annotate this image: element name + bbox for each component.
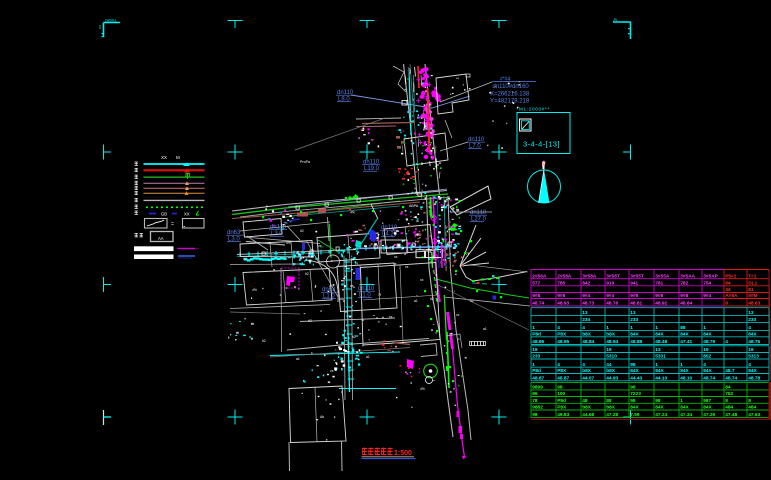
svg-text:987: 987 — [703, 398, 711, 404]
svg-text:1: 1 — [655, 362, 658, 368]
svg-text:84X: 84X — [703, 405, 712, 411]
svg-text:8: 8 — [725, 398, 728, 404]
svg-text:#2: #2 — [352, 335, 356, 339]
svg-text:13: 13 — [655, 347, 661, 353]
svg-text:48.94: 48.94 — [606, 339, 618, 345]
svg-text:785: 785 — [557, 280, 565, 286]
svg-text:9#4: 9#4 — [703, 293, 711, 299]
svg-text:3#55T: 3#55T — [630, 273, 644, 279]
svg-text:19: 19 — [532, 347, 538, 353]
svg-text:81: 81 — [748, 287, 754, 293]
svg-text:84: 84 — [725, 280, 731, 286]
svg-text:b8X: b8X — [606, 405, 616, 411]
svg-text:9#4: 9#4 — [606, 293, 614, 299]
svg-text:xx: xx — [389, 315, 393, 319]
svg-text:48.92: 48.92 — [655, 301, 667, 307]
svg-text:=: = — [171, 222, 174, 228]
svg-text:DL1: DL1 — [748, 280, 757, 286]
svg-text:9#8: 9#8 — [557, 293, 565, 299]
svg-text:b8X: b8X — [582, 331, 592, 337]
svg-text:78: 78 — [532, 398, 538, 404]
svg-text:13: 13 — [582, 310, 588, 316]
svg-text:9899: 9899 — [532, 385, 543, 391]
svg-text:5313: 5313 — [748, 354, 759, 360]
svg-text:4%: 4% — [420, 387, 425, 391]
svg-text:48.79: 48.79 — [703, 339, 715, 345]
svg-text:xx: xx — [330, 369, 334, 373]
svg-text:84X: 84X — [655, 331, 664, 337]
svg-text:234: 234 — [582, 317, 590, 323]
svg-text:48.48: 48.48 — [655, 339, 667, 345]
svg-text:47.24: 47.24 — [655, 412, 667, 418]
svg-text:48.75: 48.75 — [748, 339, 760, 345]
svg-text:84X: 84X — [748, 331, 757, 337]
svg-text:4: 4 — [582, 325, 585, 331]
svg-text:19: 19 — [703, 347, 709, 353]
svg-text:xx: xx — [394, 255, 398, 259]
svg-text:8: 8 — [725, 301, 728, 307]
svg-text:48.87: 48.87 — [532, 375, 544, 381]
svg-text:4: 4 — [557, 325, 560, 331]
svg-text:3#5AP: 3#5AP — [703, 273, 718, 279]
svg-text:44.10: 44.10 — [655, 375, 667, 381]
svg-text:5310: 5310 — [606, 354, 617, 360]
svg-text:1: 1 — [655, 325, 658, 331]
svg-text:1: 1 — [680, 398, 683, 404]
svg-text:9#4: 9#4 — [582, 293, 590, 299]
svg-text:84X: 84X — [655, 405, 664, 411]
svg-text:48.63: 48.63 — [748, 301, 760, 307]
svg-text:44.43: 44.43 — [630, 375, 642, 381]
svg-text:233: 233 — [630, 317, 638, 323]
svg-text:1: 1 — [680, 362, 683, 368]
svg-text:xx: xx — [456, 313, 460, 317]
svg-text:xx: xx — [428, 250, 432, 254]
svg-text:A#8A: A#8A — [725, 293, 738, 299]
svg-text:98: 98 — [557, 385, 563, 391]
svg-text:47.29: 47.29 — [703, 412, 715, 418]
svg-text:4%: 4% — [286, 241, 291, 245]
svg-text:44.07: 44.07 — [582, 375, 594, 381]
svg-text:48.10: 48.10 — [680, 375, 692, 381]
svg-text:9#8: 9#8 — [532, 293, 540, 299]
svg-text:8.0: 8.0 — [98, 25, 102, 30]
svg-text:1: 1 — [532, 362, 535, 368]
svg-text:941: 941 — [630, 280, 638, 286]
svg-text:98: 98 — [630, 385, 636, 391]
svg-text:#2: #2 — [300, 229, 304, 233]
svg-text:84X: 84X — [748, 368, 757, 374]
svg-text:#2: #2 — [243, 257, 247, 261]
svg-text:7223: 7223 — [630, 391, 641, 397]
svg-text:4: 4 — [557, 362, 560, 368]
svg-text:84X: 84X — [680, 331, 689, 337]
svg-text:ProPa: ProPa — [300, 160, 310, 164]
svg-text:842: 842 — [582, 280, 590, 286]
svg-text:3-4-4-[13]: 3-4-4-[13] — [523, 140, 560, 149]
svg-text:47.41: 47.41 — [680, 339, 692, 345]
svg-text:#2: #2 — [430, 297, 434, 301]
svg-text:#2: #2 — [308, 319, 312, 323]
svg-text:754: 754 — [703, 280, 711, 286]
svg-text:P8d: P8d — [532, 331, 541, 337]
svg-text:484: 484 — [748, 405, 756, 411]
svg-text:84X: 84X — [630, 368, 639, 374]
svg-text:a1: a1 — [483, 327, 487, 331]
svg-text:b8X: b8X — [582, 368, 592, 374]
svg-text:1: 1 — [630, 325, 633, 331]
svg-text:3#55A: 3#55A — [655, 273, 670, 279]
svg-text:xx: xx — [420, 278, 424, 282]
svg-text:484: 484 — [725, 405, 733, 411]
svg-text:84X: 84X — [703, 368, 712, 374]
svg-text:48.88: 48.88 — [630, 339, 642, 345]
svg-text:E.#8: E.#8 — [385, 245, 395, 250]
svg-text:**: ** — [456, 76, 460, 81]
svg-text:19: 19 — [606, 347, 612, 353]
svg-text:48.73: 48.73 — [582, 301, 594, 307]
svg-text:5331: 5331 — [655, 354, 666, 360]
svg-text:a1: a1 — [366, 355, 370, 359]
svg-text:1: 1 — [532, 325, 535, 331]
svg-text:3#56T: 3#56T — [606, 273, 620, 279]
svg-text:86: 86 — [532, 391, 538, 397]
svg-text:ABPA: ABPA — [409, 204, 419, 208]
svg-text:3#58A: 3#58A — [582, 273, 597, 279]
svg-text:1: 1 — [703, 325, 706, 331]
svg-text:13: 13 — [748, 310, 754, 316]
svg-text:4: 4 — [725, 339, 728, 345]
svg-text:M: M — [176, 155, 180, 160]
svg-text:P8X: P8X — [557, 405, 567, 411]
svg-text:b8X: b8X — [606, 368, 616, 374]
svg-text:Y=482178.218: Y=482178.218 — [490, 99, 530, 105]
svg-text:47.48: 47.48 — [725, 412, 737, 418]
svg-text:GB: GB — [161, 212, 167, 217]
svg-text:LWSN.1: LWSN.1 — [105, 19, 117, 23]
svg-text:9#8: 9#8 — [630, 293, 638, 299]
svg-text:19: 19 — [748, 347, 754, 353]
svg-text:47.63: 47.63 — [748, 412, 760, 418]
svg-text:98: 98 — [655, 398, 661, 404]
svg-text:7f: 7f — [378, 293, 381, 297]
svg-text:233: 233 — [532, 354, 540, 360]
svg-text:34: 34 — [725, 287, 731, 293]
svg-text:88: 88 — [680, 325, 686, 331]
svg-text:P8d: P8d — [532, 368, 541, 374]
svg-text:49.83: 49.83 — [557, 412, 569, 418]
svg-text:48.78: 48.78 — [748, 375, 760, 381]
svg-text:48.93: 48.93 — [557, 301, 569, 307]
svg-text:X=266216.138: X=266216.138 — [490, 92, 530, 98]
svg-text:752: 752 — [725, 391, 733, 397]
svg-text:xx: xx — [318, 244, 322, 248]
svg-text:88: 88 — [606, 398, 612, 404]
svg-text:84X: 84X — [630, 331, 639, 337]
svg-text:AA: AA — [158, 236, 164, 241]
svg-text:233: 233 — [748, 317, 756, 323]
svg-text:84X: 84X — [680, 368, 689, 374]
svg-text:#2: #2 — [470, 299, 474, 303]
svg-text:84X: 84X — [680, 405, 689, 411]
svg-text:T#1: T#1 — [748, 273, 757, 279]
svg-text:44: 44 — [606, 362, 612, 368]
svg-text:48.95: 48.95 — [557, 339, 569, 345]
svg-text:44.93: 44.93 — [606, 375, 618, 381]
svg-text:48.7: 48.7 — [725, 368, 735, 374]
svg-text:44.68: 44.68 — [582, 412, 594, 418]
svg-text:48.74: 48.74 — [703, 375, 715, 381]
svg-text:84: 84 — [725, 385, 731, 391]
svg-text:48.81: 48.81 — [630, 301, 642, 307]
svg-text:1: 1 — [606, 325, 609, 331]
svg-text:7f: 7f — [466, 252, 469, 256]
svg-text:JN: JN — [613, 18, 618, 22]
svg-text:100: 100 — [557, 391, 565, 397]
svg-text:98: 98 — [532, 412, 538, 418]
svg-text:47.28: 47.28 — [606, 412, 618, 418]
svg-text:48.87: 48.87 — [557, 375, 569, 381]
svg-text:48.84: 48.84 — [680, 301, 692, 307]
svg-text:919: 919 — [606, 280, 614, 286]
svg-text:4: 4 — [703, 362, 706, 368]
svg-text:Ab: Ab — [320, 415, 324, 419]
svg-text:#2: #2 — [262, 339, 266, 343]
svg-text:48: 48 — [582, 398, 588, 404]
svg-text:XX: XX — [161, 155, 167, 160]
svg-text:84X: 84X — [630, 405, 639, 411]
svg-text:P8X: P8X — [557, 331, 567, 337]
svg-text:9#8: 9#8 — [655, 293, 663, 299]
svg-text:xx: xx — [350, 284, 354, 288]
svg-text:98: 98 — [630, 362, 636, 368]
svg-text:P8d: P8d — [557, 398, 566, 404]
svg-text:48.96: 48.96 — [532, 339, 544, 345]
svg-text:48.84: 48.84 — [582, 339, 594, 345]
svg-text:9882: 9882 — [532, 405, 543, 411]
svg-text:4%: 4% — [350, 211, 355, 215]
svg-text:*M1:2000#**: *M1:2000#** — [517, 107, 551, 112]
svg-text:9#8: 9#8 — [680, 293, 688, 299]
svg-text:Ab: Ab — [340, 297, 344, 301]
svg-text:4: 4 — [748, 325, 751, 331]
svg-text:P8X: P8X — [557, 368, 567, 374]
svg-text:4%: 4% — [252, 288, 257, 292]
svg-text:a1: a1 — [414, 299, 418, 303]
svg-text:48.74: 48.74 — [725, 375, 737, 381]
svg-text:577: 577 — [532, 280, 540, 286]
svg-text:7f: 7f — [355, 262, 358, 266]
svg-text:3#5AA: 3#5AA — [680, 273, 695, 279]
svg-text:84X: 84X — [703, 331, 712, 337]
svg-text:8: 8 — [748, 398, 751, 404]
svg-text:P5#2: P5#2 — [725, 273, 737, 279]
svg-text:4: 4 — [748, 362, 751, 368]
svg-text:13: 13 — [630, 310, 636, 316]
svg-text:84X: 84X — [655, 368, 664, 374]
svg-text:a1: a1 — [296, 357, 300, 361]
svg-text:47.34: 47.34 — [680, 412, 692, 418]
svg-text:4: 4 — [582, 362, 585, 368]
svg-text:dn110#dn160: dn110#dn160 — [493, 84, 530, 90]
svg-text:48.74: 48.74 — [532, 301, 544, 307]
svg-text:5#M: 5#M — [748, 293, 757, 299]
svg-text:XX: XX — [184, 212, 190, 217]
svg-text:782: 782 — [680, 280, 688, 286]
svg-text:7.59: 7.59 — [630, 412, 640, 418]
svg-text:48.76: 48.76 — [606, 301, 618, 307]
svg-text:98: 98 — [630, 398, 636, 404]
svg-text:b8X: b8X — [582, 405, 592, 411]
svg-text:#2: #2 — [305, 272, 309, 276]
svg-text:b8X: b8X — [606, 331, 616, 337]
svg-text:2#56A: 2#56A — [532, 273, 547, 279]
svg-text:1:500: 1:500 — [394, 450, 412, 457]
svg-text:781: 781 — [655, 280, 663, 286]
svg-text:xx: xx — [405, 265, 409, 269]
svg-text:852: 852 — [703, 354, 711, 360]
svg-text:2#58A: 2#58A — [557, 273, 572, 279]
